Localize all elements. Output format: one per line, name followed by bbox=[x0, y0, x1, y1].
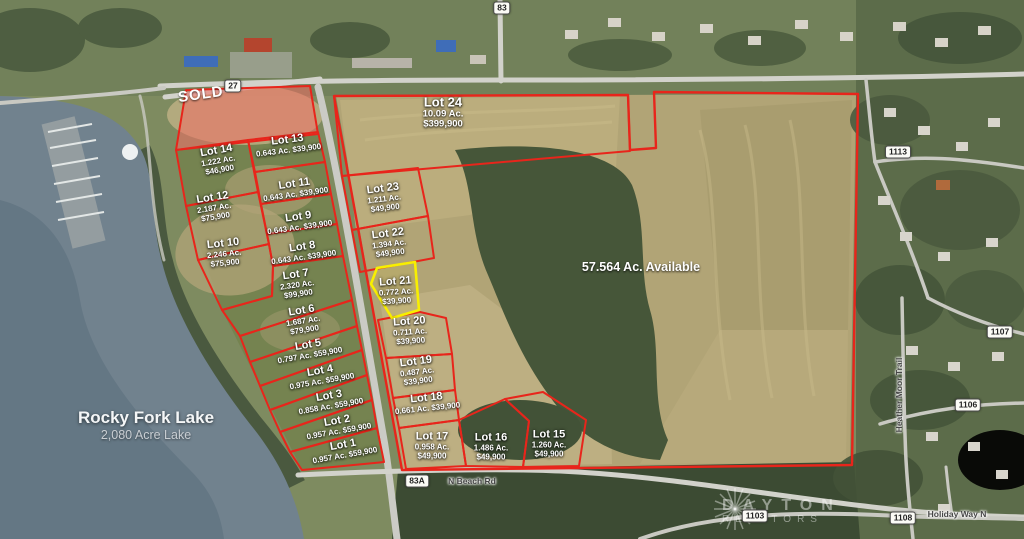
road-badge-27: 27 bbox=[224, 80, 241, 93]
lot-label-lot-23: Lot 231.211 Ac.$49,900 bbox=[365, 181, 402, 214]
lot-label-lot-16: Lot 161.486 Ac.$49,900 bbox=[474, 432, 508, 461]
aerial-lot-map: SOLD 57.564 Ac. Available Rocky Fork Lak… bbox=[0, 0, 1024, 539]
road-badge-1113: 1113 bbox=[885, 146, 911, 159]
road-badge-83a: 83A bbox=[405, 475, 429, 488]
lot-label-lot-5: Lot 50.797 Ac. $59,900 bbox=[275, 334, 343, 366]
available-acreage-label: 57.564 Ac. Available bbox=[582, 260, 700, 274]
road-badge-1107: 1107 bbox=[987, 326, 1013, 339]
lake-subtitle: 2,080 Acre Lake bbox=[78, 428, 214, 442]
lot-label-lot-12: Lot 122.187 Ac.$75,900 bbox=[195, 190, 234, 224]
lot-label-lot-9: Lot 90.643 Ac. $39,900 bbox=[265, 207, 333, 236]
road-badge-1106: 1106 bbox=[955, 399, 981, 412]
lot-label-lot-15: Lot 151.260 Ac.$49,900 bbox=[532, 429, 566, 458]
lot-label-lot-18: Lot 180.661 Ac. $39,900 bbox=[393, 389, 460, 416]
road-name-holiday-way-n: Holiday Way N bbox=[928, 509, 987, 519]
lot-label-lot-17: Lot 170.958 Ac.$49,900 bbox=[415, 431, 449, 460]
road-badge-83: 83 bbox=[493, 2, 510, 15]
lot-label-lot-19: Lot 190.487 Ac.$39,900 bbox=[398, 354, 436, 387]
lot-label-lot-7: Lot 72.320 Ac.$99,900 bbox=[278, 267, 316, 301]
sold-label: SOLD bbox=[177, 83, 225, 106]
lot-label-lot-20: Lot 200.711 Ac.$39,900 bbox=[392, 315, 428, 346]
lot-label-lot-6: Lot 61.687 Ac.$79,900 bbox=[284, 303, 323, 337]
labels-layer: SOLD 57.564 Ac. Available Rocky Fork Lak… bbox=[0, 0, 1024, 539]
lot-label-lot-11: Lot 110.643 Ac. $39,900 bbox=[261, 174, 329, 203]
lot-label-lot-8: Lot 80.643 Ac. $39,900 bbox=[269, 237, 337, 266]
lot-label-lot-21: Lot 210.772 Ac.$39,900 bbox=[378, 275, 414, 306]
lake-label: Rocky Fork Lake 2,080 Acre Lake bbox=[78, 408, 214, 442]
lot-label-lot-22: Lot 221.394 Ac.$49,900 bbox=[370, 226, 408, 259]
lake-name: Rocky Fork Lake bbox=[78, 408, 214, 428]
lot-label-lot-13: Lot 130.643 Ac. $39,900 bbox=[254, 131, 322, 159]
road-badge-1103: 1103 bbox=[742, 510, 768, 523]
watermark-line1: DAYTON bbox=[722, 497, 842, 515]
road-name-heather-moor-trail: Heather Moor Trail bbox=[894, 358, 904, 433]
lot-label-lot-24: Lot 2410.09 Ac.$399,900 bbox=[423, 96, 464, 131]
watermark-line2: REALTORS bbox=[722, 514, 842, 525]
lot-label-lot-10: Lot 102.246 Ac.$75,900 bbox=[205, 237, 242, 270]
lot-label-lot-14: Lot 141.222 Ac.$46,900 bbox=[199, 143, 238, 178]
road-badge-1108: 1108 bbox=[890, 512, 916, 525]
road-name-n-beach-rd: N Beach Rd bbox=[448, 476, 496, 486]
